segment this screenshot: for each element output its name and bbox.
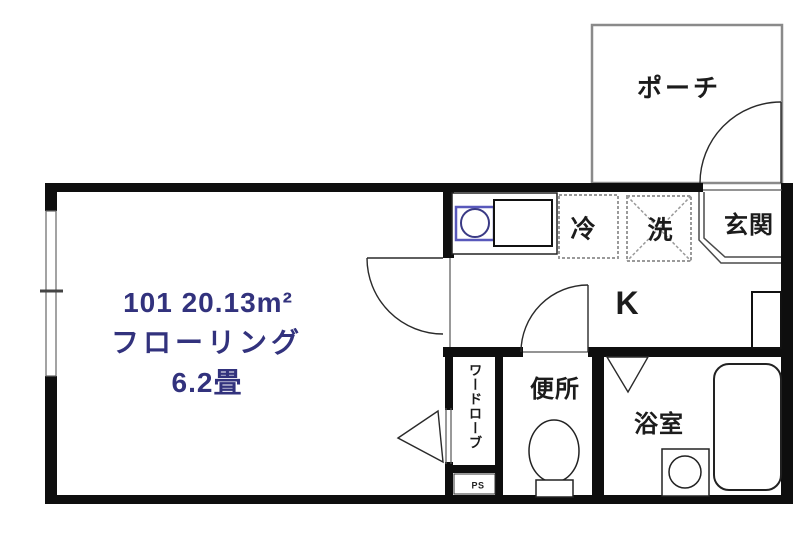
toilet-label: 便所 [530,378,580,402]
toilet-bowl [529,420,579,482]
wall-segment-kitchen-bottom [443,347,523,357]
wall-segment-wardrobe-left-lower [445,462,453,497]
wall-segment-right [781,183,793,504]
entrance-label: 玄関 [724,214,774,238]
porch-label: ポーチ [637,77,721,102]
pipe-space-label: PS [471,482,484,491]
porch-outline [592,25,782,183]
toilet-fixture [529,420,579,497]
kitchen-counter-unit [452,193,557,254]
main-room-flooring-label: フローリング [111,329,303,357]
wall-segment-wardrobe-right [495,357,503,497]
toilet-tank [536,480,573,497]
kitchen-label: K [615,287,638,319]
toilet-door-arc [521,285,588,352]
bathtub [714,364,781,490]
shoe-cabinet [752,292,781,348]
counter-top-box [494,200,552,246]
wall-segment-top-under-porch [592,183,703,192]
window-glass [46,211,56,376]
main-room-size-label: 6.2畳 [172,369,243,397]
floor-plan: ポーチ 玄関 冷 洗 K 便所 浴室 101 20.13m² フローリング 6.… [0,0,800,550]
wardrobe-door-triangle [398,411,443,462]
kitchen-door-arc [367,258,443,334]
wall-segment-left-upper [45,183,57,211]
wall-segment-wardrobe-left-upper [445,357,453,410]
bathroom-folding-door-triangle [607,357,648,392]
wall-segment-toilet-bath-divider [592,357,604,497]
washing-machine-label: 洗 [647,219,672,244]
bathroom-label: 浴室 [634,413,684,437]
window [40,211,63,376]
wall-segment-left-lower [45,376,57,504]
wall-segment-toilet-door-post [588,347,604,357]
refrigerator-label: 冷 [570,218,595,243]
washbasin-bowl [669,456,701,488]
main-room-number-area-label: 101 20.13m² [123,289,293,317]
wardrobe-label: ワードローブ [467,363,481,467]
wall-segment-top-left [45,183,592,192]
